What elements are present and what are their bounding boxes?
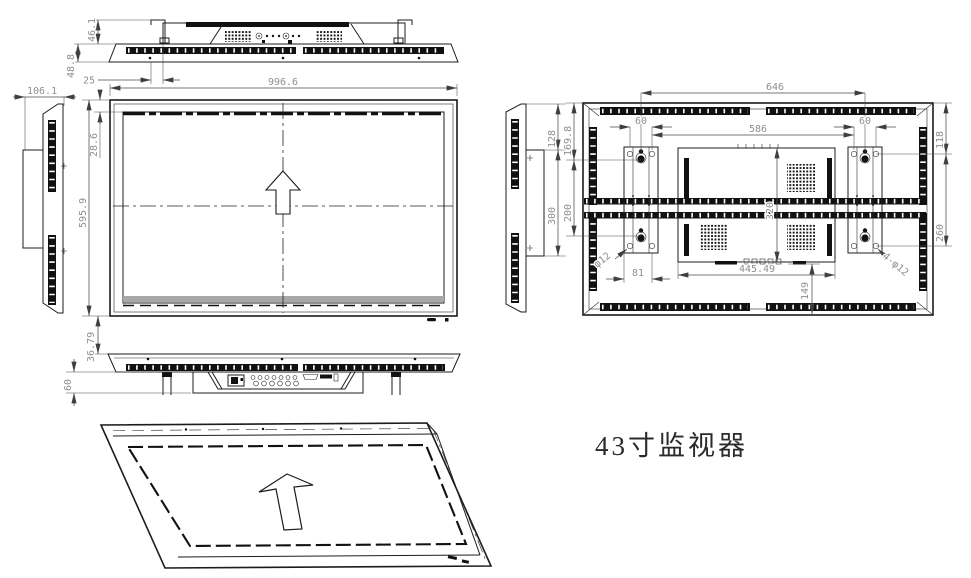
- dim-front-width: 996.6: [268, 77, 298, 88]
- screw-mark: [527, 155, 533, 251]
- vent-grille: [126, 47, 444, 54]
- vent-grille: [511, 119, 519, 303]
- dim-hole-span-inner: 586: [749, 124, 767, 135]
- vga-port: [303, 375, 318, 380]
- dim-hole-pitch-right: 260: [935, 224, 946, 242]
- mount-hole: [649, 243, 654, 248]
- vent-grid: [316, 31, 342, 42]
- iso-screen-edge: [128, 445, 466, 546]
- vent-grille: [126, 364, 445, 371]
- top-view: 46.1 48.8 25: [66, 18, 458, 87]
- dim-bottom-gap: 36.79: [86, 332, 97, 362]
- mount-hole: [851, 151, 856, 156]
- bottom-view: 36.79 60: [63, 316, 460, 406]
- dim-bracket-pitch-left: 60: [635, 116, 647, 127]
- orientation-arrow-up-icon: [259, 474, 313, 530]
- drawing-sheet: 46.1 48.8 25 106.1: [0, 0, 971, 578]
- dim-box-to-bottom: 149: [800, 282, 811, 300]
- dim-bracket-pitch-right: 60: [859, 116, 871, 127]
- dim-hole-callout: 4-φ12: [880, 251, 910, 279]
- side-view-left: 106.1: [13, 86, 76, 313]
- orientation-arrow-up-icon: [266, 171, 300, 214]
- screw-mark: [61, 163, 67, 254]
- vent-grille: [48, 120, 56, 305]
- dim-top-to-hole-left: 169.8: [563, 126, 574, 156]
- vent-grid: [225, 31, 251, 42]
- dim-top-bracket-height: 46.1: [87, 18, 98, 42]
- dim-top-to-hole-right: 118: [935, 131, 946, 149]
- dim-front-top-bezel: 28.6: [89, 133, 100, 157]
- screen-bottom-strip: [123, 296, 444, 302]
- monitor-engineering-drawing: 46.1 48.8 25 106.1: [0, 0, 971, 578]
- mount-hole: [627, 151, 632, 156]
- isometric-view: [101, 423, 491, 568]
- usb-port: [334, 374, 338, 381]
- rca-jacks: [251, 376, 298, 386]
- dim-terminal-box-height: 60: [63, 379, 74, 391]
- dim-hole-span-outer: 646: [766, 82, 784, 93]
- side-view-right: 128 300: [506, 104, 566, 312]
- dim-hole-pitch-left: 200: [563, 204, 574, 222]
- dim-box-height: 320: [765, 202, 776, 220]
- front-view: 996.6 28.6 595.9: [78, 77, 457, 322]
- hdmi-port: [320, 375, 332, 379]
- mount-plate-profile: [526, 150, 544, 256]
- dim-box-width: 445.49: [739, 264, 775, 275]
- vent-grid: [787, 224, 815, 250]
- drawing-title: 43寸监视器: [595, 431, 748, 461]
- vent-grille: [589, 107, 927, 311]
- mount-hole: [649, 151, 654, 156]
- dim-top-to-plate: 128: [547, 130, 558, 148]
- dim-top-panel-thickness: 48.8: [66, 54, 77, 78]
- mount-hole: [627, 243, 632, 248]
- rear-view: 646 60 60 586 169.8 200 118 260 320 445.…: [563, 82, 952, 315]
- power-led-icon: [445, 318, 449, 322]
- ir-receiver-icon: [427, 318, 436, 321]
- rear-box-profile: [23, 150, 43, 248]
- dim-bracket-width: 81: [632, 268, 644, 279]
- vent-grid: [700, 224, 728, 250]
- control-buttons: [256, 33, 300, 44]
- wall-mount-rails: [584, 198, 926, 219]
- mount-hole: [851, 243, 856, 248]
- connector-panel: [228, 374, 338, 386]
- dim-side-depth: 106.1: [27, 86, 57, 97]
- dim-plate-height: 300: [547, 207, 558, 225]
- vent-grid: [787, 164, 815, 192]
- dim-front-height: 595.9: [78, 198, 89, 228]
- dim-top-hook-offset: 25: [83, 76, 95, 87]
